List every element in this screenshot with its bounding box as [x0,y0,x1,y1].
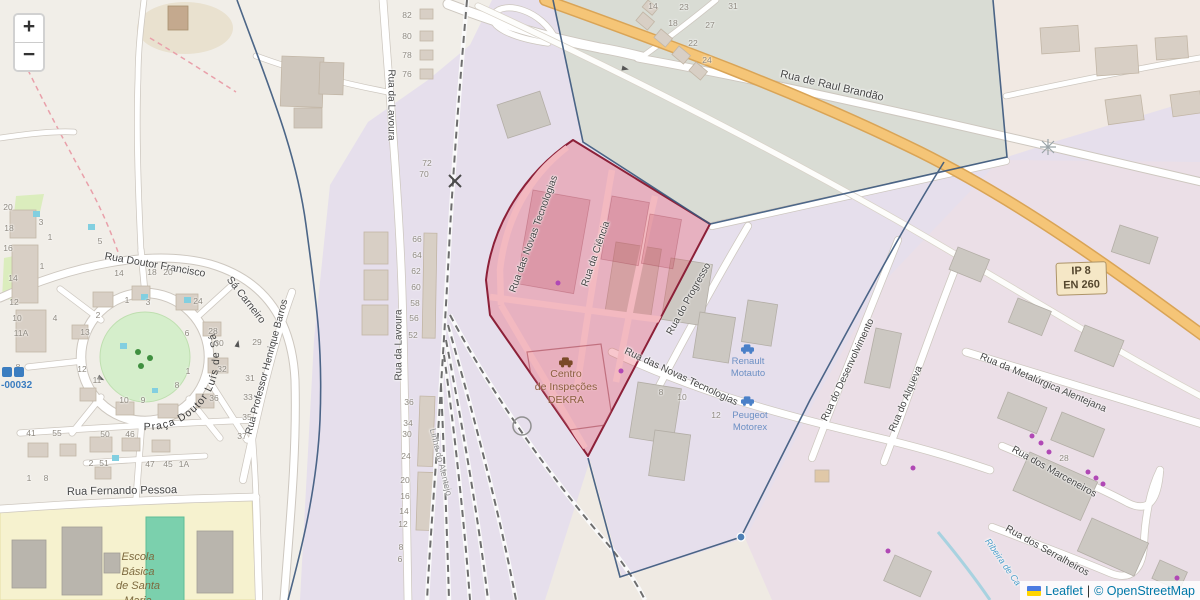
zoom-control: + − [13,13,45,72]
zoom-out-button[interactable]: − [15,43,43,70]
mast-icon [1040,139,1056,155]
attribution-bar: Leaflet | © OpenStreetMap [1020,581,1200,600]
map-tiles: Praça Doutor Luís de Sá [0,0,1200,600]
poi-dealer2-label: PeugeotMotorex [732,410,767,435]
leaflet-map[interactable]: Praça Doutor Luís de Sá Rua de Raul Bran… [0,0,1200,600]
attribution-separator: | [1087,584,1090,598]
water-icon [14,367,24,377]
roundabout-green [100,312,190,402]
water-ref-label: -00032 [1,380,32,391]
poi-dekra-label: Centro de Inspeções DEKRA [535,368,597,407]
footpaths [28,38,236,252]
road-shield-ip8: IP 8 EN 260 [1055,261,1107,295]
osm-link[interactable]: © OpenStreetMap [1094,584,1195,598]
ukraine-flag-icon [1027,586,1041,596]
water-icon [2,367,12,377]
boundary-vertex-marker[interactable] [737,533,745,541]
poi-dealer1-label: RenaultMotauto [731,356,765,381]
zoom-in-button[interactable]: + [15,15,43,43]
poi-school-label: Escola Básica de Santa Maria [116,550,160,600]
leaflet-link[interactable]: Leaflet [1045,584,1083,598]
